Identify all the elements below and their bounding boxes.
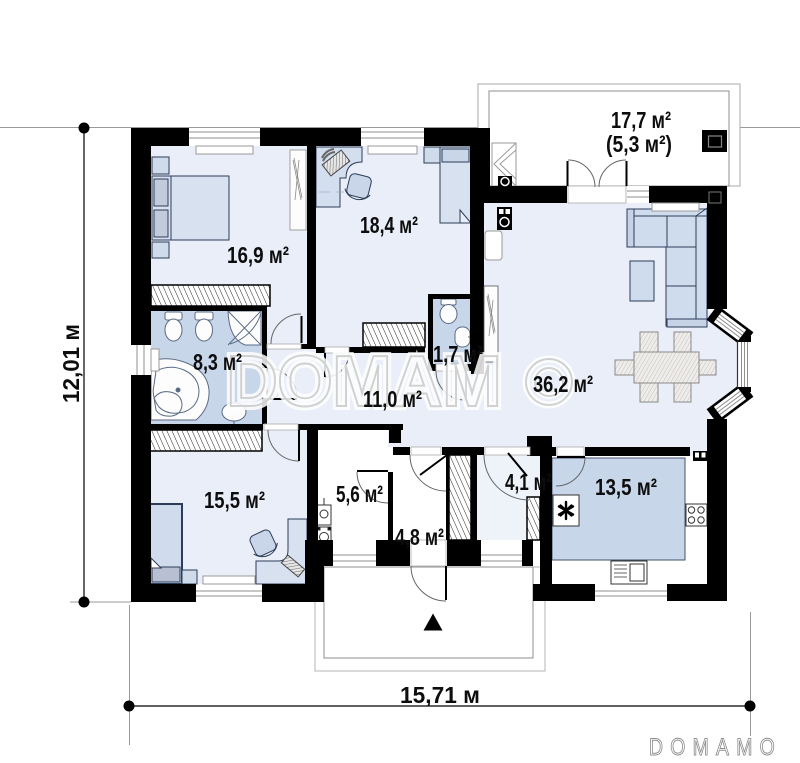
svg-text:15,71 м: 15,71 м	[400, 682, 480, 708]
svg-text:(5,3 м²): (5,3 м²)	[606, 131, 672, 157]
svg-text:16,9 м²: 16,9 м²	[227, 242, 289, 268]
svg-text:8,3 м²: 8,3 м²	[193, 349, 242, 375]
svg-text:17,7 м²: 17,7 м²	[611, 107, 671, 133]
svg-text:36,2 м²: 36,2 м²	[533, 371, 593, 397]
svg-text:5,6 м²: 5,6 м²	[336, 481, 383, 507]
svg-text:1,7 м²: 1,7 м²	[433, 341, 483, 367]
svg-text:4,1 м²: 4,1 м²	[505, 469, 552, 495]
svg-text:DOMAMO: DOMAMO	[649, 734, 782, 761]
svg-text:12,01 м: 12,01 м	[58, 324, 84, 403]
svg-text:4,8 м²: 4,8 м²	[395, 524, 444, 550]
svg-text:15,5 м²: 15,5 м²	[204, 487, 265, 513]
svg-text:18,4 м²: 18,4 м²	[360, 212, 418, 238]
svg-text:13,5 м²: 13,5 м²	[595, 474, 657, 500]
svg-text:11,0 м²: 11,0 м²	[363, 386, 422, 412]
